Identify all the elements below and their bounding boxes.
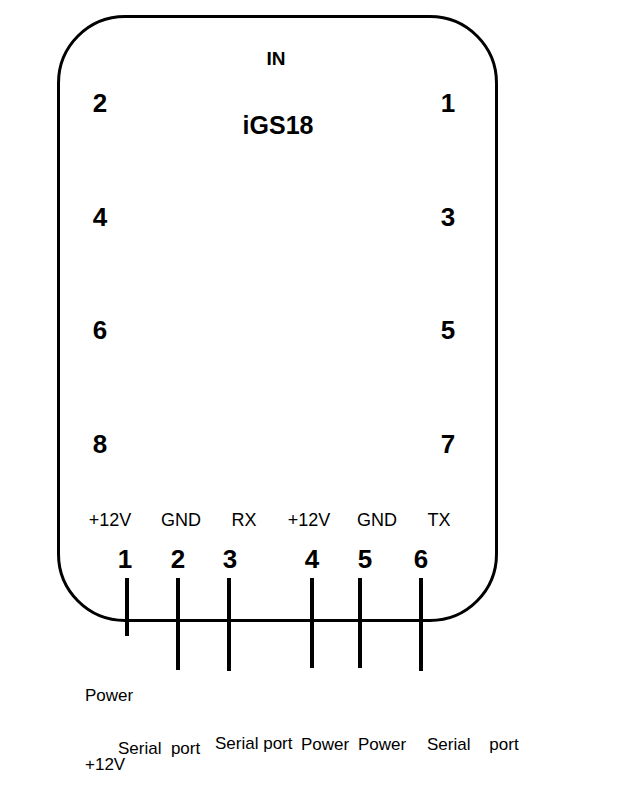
pin-number-2: 2 <box>93 88 107 119</box>
connector-pin3-function-label: RX <box>231 510 256 531</box>
wire-description-3: Serial port connector TX <box>215 686 292 786</box>
wire-description-line: Serial port <box>215 732 292 755</box>
pin-number-7: 7 <box>441 429 455 460</box>
pin-number-8: 8 <box>93 429 107 460</box>
device-outline <box>57 15 498 622</box>
pin-number-6: 6 <box>93 315 107 346</box>
wire-line-5 <box>358 578 362 668</box>
wire-line-3 <box>227 578 231 671</box>
wire-line-2 <box>176 578 180 670</box>
wire-description-4: Power +12V <box>301 687 349 786</box>
connector-pin6-function-label: TX <box>427 510 450 531</box>
wire-description-line: Power <box>358 733 406 756</box>
connector-pin5-function-label: GND <box>357 510 397 531</box>
wire-description-2: Serial port connector GND <box>118 691 200 786</box>
pin-number-4: 4 <box>93 202 107 233</box>
connector-pin-number-6: 6 <box>414 544 428 575</box>
pin-number-1: 1 <box>441 88 455 119</box>
wire-description-line: Power <box>301 733 349 756</box>
connector-pin1-function-label: +12V <box>89 510 132 531</box>
connector-pin-number-5: 5 <box>358 544 372 575</box>
pin-number-5: 5 <box>441 315 455 346</box>
connector-pin-number-4: 4 <box>305 544 319 575</box>
wire-description-5: Power -12V <box>358 687 406 786</box>
connector-pin-number-3: 3 <box>223 544 237 575</box>
device-in-label: IN <box>267 48 286 70</box>
connector-pin-number-2: 2 <box>171 544 185 575</box>
wire-line-1 <box>125 578 129 636</box>
connector-pin2-function-label: GND <box>161 510 201 531</box>
wire-line-4 <box>310 578 314 668</box>
pin-number-3: 3 <box>441 202 455 233</box>
wire-description-6: Serial port connector RX <box>427 687 519 786</box>
wire-line-6 <box>419 578 423 671</box>
device-title: iGS18 <box>243 111 314 140</box>
wire-description-line: Serial port <box>118 737 200 760</box>
connector-pin4-function-label: +12V <box>288 510 331 531</box>
connector-pin-number-1: 1 <box>118 544 132 575</box>
wire-description-line: Serial port <box>427 733 519 756</box>
